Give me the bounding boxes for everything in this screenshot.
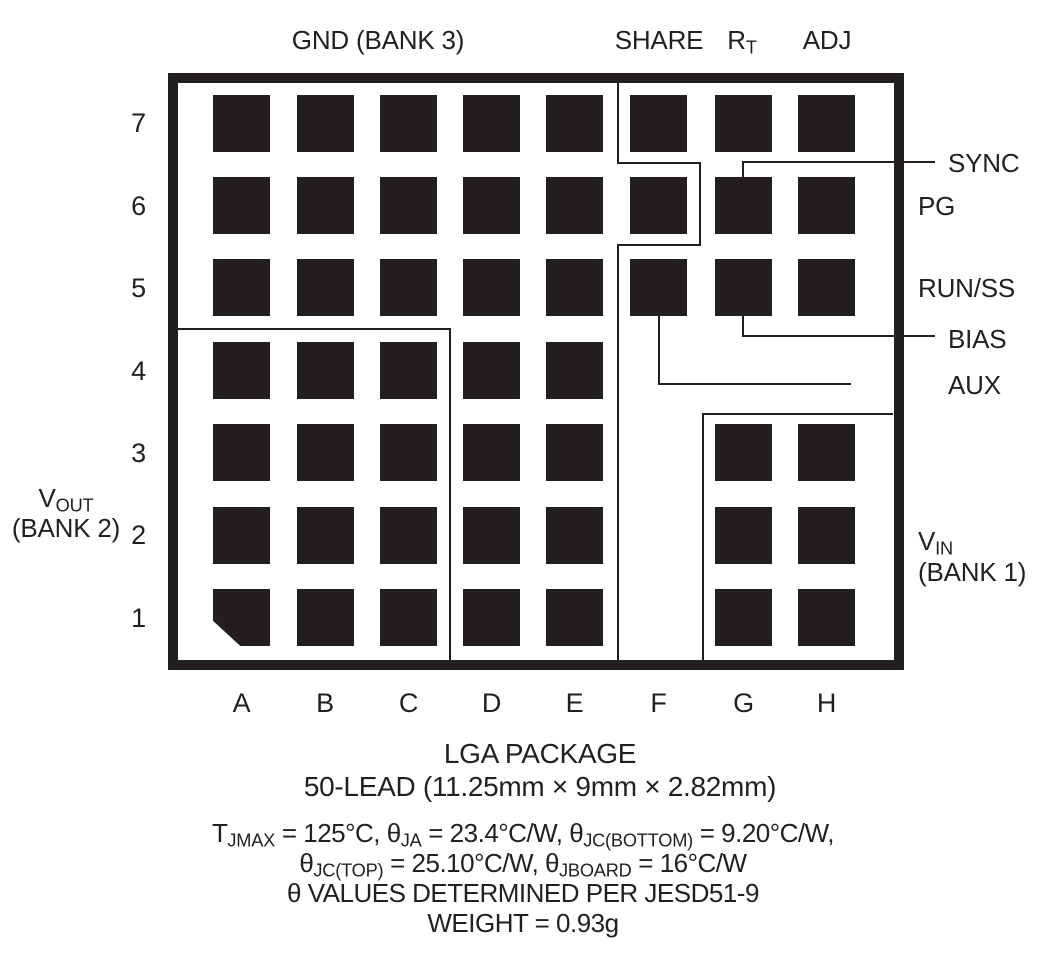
col-label-F: F: [650, 689, 666, 717]
pad-G7: [715, 95, 772, 152]
bank3-boundary-segment: [617, 162, 701, 164]
thermal-notes: TJMAX = 125°C, θJA = 23.4°C/W, θJC(BOTTO…: [123, 818, 923, 938]
thermal-line-1: TJMAX = 125°C, θJA = 23.4°C/W, θJC(BOTTO…: [123, 818, 923, 848]
label-run-ss: RUN/SS: [918, 274, 1015, 302]
pad-G5: [715, 259, 772, 316]
sync-callout-line: [742, 162, 744, 178]
label-sync: SYNC: [948, 149, 1019, 177]
pad-B1: [297, 589, 354, 646]
lga-pinout-diagram: GND (BANK 3) SHARE RT ADJ 7654321 ABCDEF…: [0, 0, 1037, 965]
label-aux: AUX: [948, 371, 1001, 399]
col-label-G: G: [733, 689, 754, 717]
pad-F5: [630, 259, 687, 316]
pad-H5: [798, 259, 855, 316]
label-rt: RT: [727, 26, 757, 54]
pad-A2: [213, 507, 270, 564]
bank3-boundary-segment: [699, 162, 701, 246]
pad-E7: [546, 95, 603, 152]
label-vin-bank1: VIN (BANK 1): [918, 526, 1026, 588]
label-vout-bank2: VOUT (BANK 2): [6, 483, 126, 543]
pad-E5: [546, 259, 603, 316]
aux-callout-line: [658, 383, 851, 385]
pad-B7: [297, 95, 354, 152]
pad-E4: [546, 342, 603, 399]
label-share: SHARE: [615, 26, 704, 54]
row-label-3: 3: [94, 439, 146, 467]
caption-lead-dimensions: 50-LEAD (11.25mm × 9mm × 2.82mm): [140, 770, 940, 803]
pad-B2: [297, 507, 354, 564]
col-label-A: A: [233, 689, 251, 717]
pad-D6: [463, 177, 520, 234]
pad-C7: [380, 95, 437, 152]
pad-B3: [297, 424, 354, 481]
thermal-line-2: θJC(TOP) = 25.10°C/W, θJBOARD = 16°C/W: [123, 848, 923, 878]
pad-E1: [546, 589, 603, 646]
col-label-B: B: [316, 689, 334, 717]
label-pg: PG: [918, 192, 955, 220]
pad-B6: [297, 177, 354, 234]
pad-A4: [213, 342, 270, 399]
pad-E2: [546, 507, 603, 564]
pad-C3: [380, 424, 437, 481]
pad-G2: [715, 507, 772, 564]
pad-B5: [297, 259, 354, 316]
bank3-boundary-segment: [617, 244, 619, 660]
pad-E3: [546, 424, 603, 481]
label-gnd-bank3: GND (BANK 3): [292, 26, 464, 54]
pad-C1: [380, 589, 437, 646]
pad-C4: [380, 342, 437, 399]
bias-callout-line: [742, 335, 935, 337]
label-bank1: (BANK 1): [918, 557, 1026, 588]
package-caption: LGA PACKAGE 50-LEAD (11.25mm × 9mm × 2.8…: [140, 737, 940, 803]
pad-A3: [213, 424, 270, 481]
pad-F7: [630, 95, 687, 152]
bank3-boundary-segment: [617, 244, 701, 246]
pad-D4: [463, 342, 520, 399]
pad-F6: [630, 177, 687, 234]
pad-G1: [715, 589, 772, 646]
label-bias: BIAS: [948, 325, 1006, 353]
label-vout: VOUT: [6, 483, 126, 513]
bias-callout-line: [742, 316, 744, 337]
aux-callout-line: [658, 316, 660, 385]
pad-D5: [463, 259, 520, 316]
caption-package-type: LGA PACKAGE: [140, 737, 940, 770]
pad-H3: [798, 424, 855, 481]
bank3-boundary-segment: [617, 83, 619, 163]
col-label-H: H: [817, 689, 836, 717]
thermal-line-4: WEIGHT = 0.93g: [123, 908, 923, 938]
row-label-6: 6: [94, 192, 146, 220]
row-label-4: 4: [94, 357, 146, 385]
pad-D7: [463, 95, 520, 152]
pad-H7: [798, 95, 855, 152]
row-label-7: 7: [94, 109, 146, 137]
pad-B4: [297, 342, 354, 399]
pad-D3: [463, 424, 520, 481]
label-bank2: (BANK 2): [6, 513, 126, 543]
pad-C2: [380, 507, 437, 564]
thermal-line-3: θ VALUES DETERMINED PER JESD51-9: [123, 878, 923, 908]
col-label-E: E: [566, 689, 584, 717]
pad-D2: [463, 507, 520, 564]
label-vin: VIN: [918, 526, 1026, 557]
sync-callout-line: [742, 161, 935, 163]
pad-G6: [715, 177, 772, 234]
pad-H2: [798, 507, 855, 564]
pad-H6: [798, 177, 855, 234]
col-label-C: C: [399, 689, 418, 717]
pad-D1: [463, 589, 520, 646]
pad-A6: [213, 177, 270, 234]
pad-E6: [546, 177, 603, 234]
row-label-1: 1: [94, 604, 146, 632]
col-label-D: D: [482, 689, 501, 717]
row-label-5: 5: [94, 274, 146, 302]
pad-A7: [213, 95, 270, 152]
label-adj: ADJ: [803, 26, 852, 54]
pad-H1: [798, 589, 855, 646]
pad-A5: [213, 259, 270, 316]
pad-G3: [715, 424, 772, 481]
pad-C6: [380, 177, 437, 234]
pad-C5: [380, 259, 437, 316]
